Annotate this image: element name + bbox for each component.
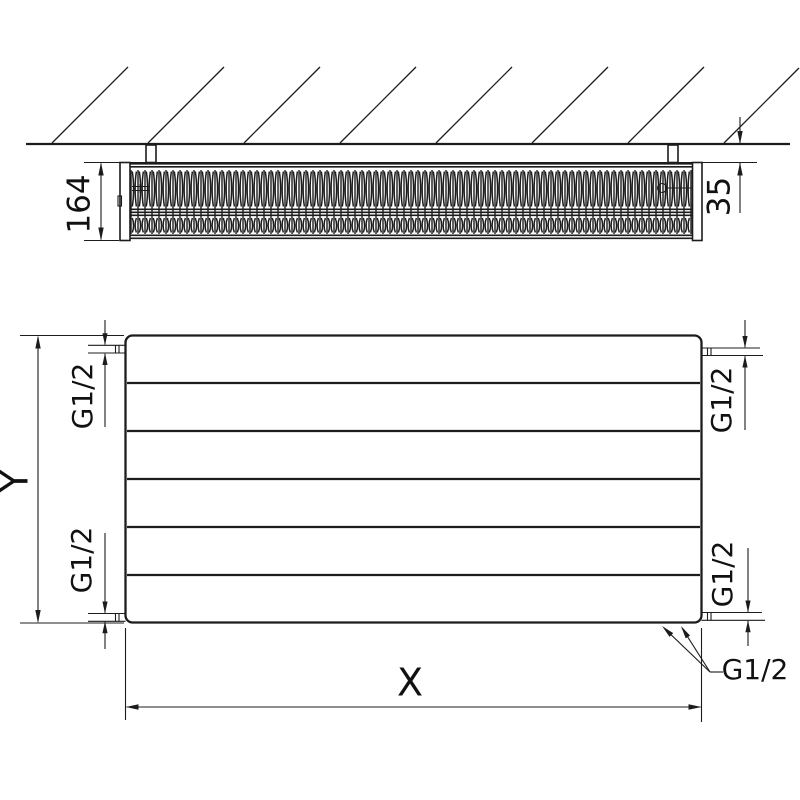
arrowhead-up: [742, 356, 747, 368]
radiator-top-view: [84, 163, 757, 241]
wall-hatching: [52, 67, 799, 143]
arrowhead-up: [102, 353, 107, 365]
arrowhead-down: [742, 336, 747, 348]
dim-conn-top-left: G1/2: [66, 320, 108, 429]
arrowhead-down: [102, 602, 107, 614]
stub-bottom-left: [88, 614, 126, 622]
dim-wall-gap-35: 35: [702, 117, 743, 216]
stub-bottom-right: [702, 613, 766, 621]
bracket-right: [668, 145, 678, 163]
arrowhead-down: [745, 601, 750, 613]
stub-top-left: [88, 345, 126, 353]
wall-brackets: [146, 145, 678, 163]
arrowhead-up: [98, 163, 103, 176]
conn-top-left-label: G1/2: [66, 363, 99, 430]
leader-arrowhead: [681, 626, 690, 638]
dim-width-X: X: [126, 628, 702, 722]
arrowhead-down: [98, 228, 103, 241]
dim-width-label: X: [397, 661, 423, 705]
dim-conn-bottom-right: G1/2: [706, 541, 751, 646]
stub-top-right: [702, 348, 764, 356]
dim-height-label: Y: [0, 469, 37, 494]
dim-conn-top-right: G1/2: [705, 320, 748, 433]
arrowhead-up: [737, 163, 742, 176]
conn-bottom-right-label: G1/2: [706, 541, 739, 608]
conn-bottom-left-label: G1/2: [65, 527, 98, 594]
wall-section: [26, 67, 799, 144]
technical-drawing-canvas: 164 35: [0, 0, 800, 800]
arrowhead-up: [745, 620, 750, 632]
dim-depth-label: 164: [62, 174, 98, 233]
top-view: 164 35: [26, 67, 799, 241]
dim-wall-gap-label: 35: [702, 177, 738, 216]
arrowhead-down: [102, 333, 107, 345]
convector-fins: [130, 170, 693, 234]
conn-top-right-label: G1/2: [705, 367, 738, 434]
arrowhead-down: [737, 131, 742, 144]
leader-conn-bottom: G1/2: [662, 626, 788, 686]
arrowhead-left: [126, 704, 139, 709]
dim-conn-bottom-left: G1/2: [65, 527, 108, 649]
panel-grooves: [127, 383, 700, 575]
dim-depth-164: 164: [62, 163, 120, 241]
conn-bottom-leader-label: G1/2: [722, 653, 789, 686]
arrowhead-down: [35, 610, 40, 623]
front-view: Y X G1/2 G1/2: [0, 320, 788, 722]
bracket-left: [146, 145, 156, 163]
arrowhead-right: [689, 704, 702, 709]
arrowhead-up: [35, 336, 40, 349]
